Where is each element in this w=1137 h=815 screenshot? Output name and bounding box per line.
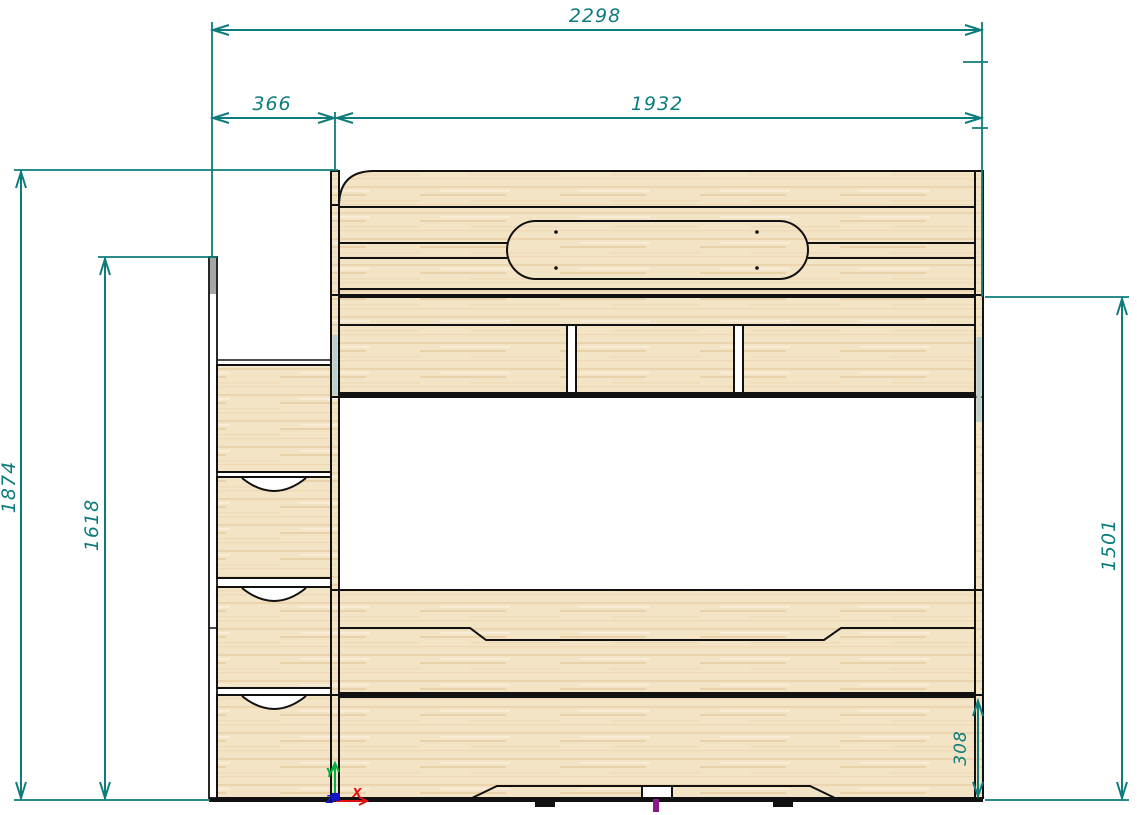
ladder-post xyxy=(209,257,217,798)
center-mark xyxy=(653,799,659,812)
dim-label-overall-height: 1874 xyxy=(0,437,19,537)
foot-glide xyxy=(535,801,555,807)
foot-glide xyxy=(773,801,793,807)
lower-bunk-front xyxy=(339,590,975,698)
dim-label-bed-width: 1932 xyxy=(557,94,757,114)
dim-label-bed-side-height: 1501 xyxy=(1099,495,1119,595)
ladder-drawer-unit xyxy=(209,257,331,798)
ladder-drawer-2 xyxy=(217,587,331,688)
y-axis-label: Y xyxy=(326,766,336,780)
elevation-drawing: Y X Z xyxy=(0,0,1137,815)
dim-label-ladder-width: 366 xyxy=(222,94,322,114)
cad-viewport: Y X Z 2298 366 1932 1874 1618 1501 308 xyxy=(0,0,1137,815)
ladder-step-panel xyxy=(217,360,331,472)
z-axis-label: Z xyxy=(325,793,335,806)
panel-divider xyxy=(734,325,743,393)
bottom-bed-drawer xyxy=(339,697,975,798)
x-axis-label: X xyxy=(351,786,362,800)
headboard-top-rail xyxy=(339,171,975,295)
upper-bunk-band xyxy=(339,297,975,325)
ladder-drawer-3 xyxy=(217,695,331,798)
bed-left-side-edge xyxy=(331,171,339,798)
dim-label-ladder-height: 1618 xyxy=(82,475,102,575)
panel-divider xyxy=(567,325,576,393)
ladder-drawer-1 xyxy=(217,477,331,578)
bunk-bed-body xyxy=(209,171,983,812)
dim-label-overall-width: 2298 xyxy=(495,6,695,26)
drawer-center-notch xyxy=(642,786,672,798)
dim-label-drawer-height: 308 xyxy=(951,698,971,798)
upper-bunk-panel-row xyxy=(339,325,975,398)
